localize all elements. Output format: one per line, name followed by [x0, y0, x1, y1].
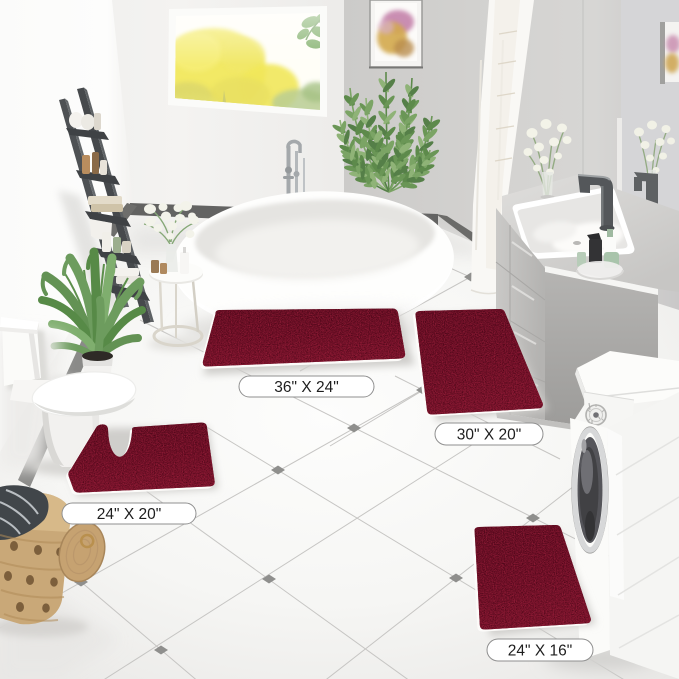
svg-text:24" X 16": 24" X 16" — [508, 643, 572, 660]
svg-text:30" X 20": 30" X 20" — [457, 427, 521, 444]
svg-text:36" X 24": 36" X 24" — [274, 379, 338, 396]
svg-text:24" X 20": 24" X 20" — [97, 506, 161, 523]
